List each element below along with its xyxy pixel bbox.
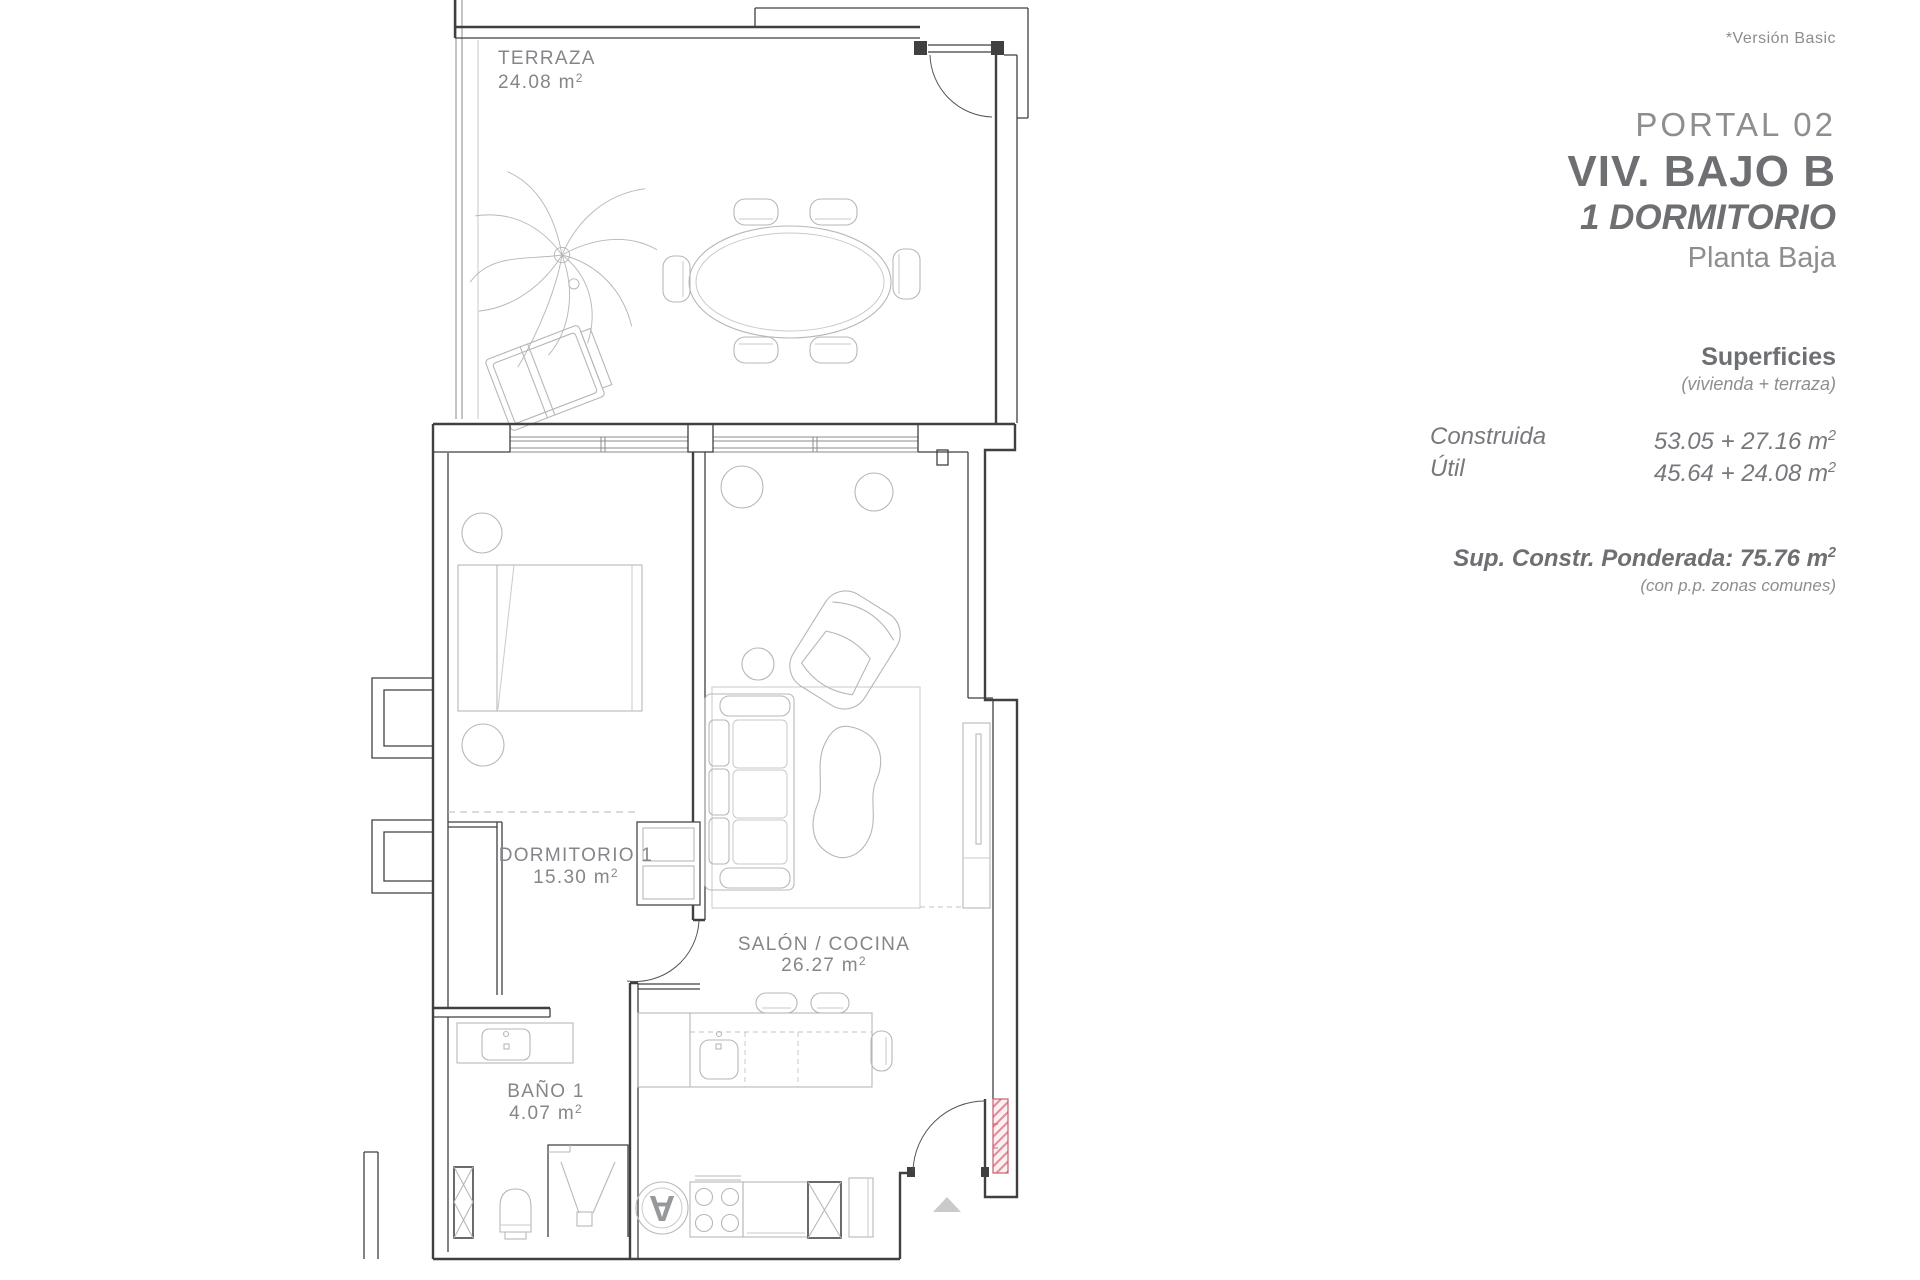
shower (548, 1145, 628, 1237)
label-terraza-area: 24.08 m2 (498, 71, 584, 93)
version-note: *Versión Basic (1430, 30, 1836, 48)
room-labels: TERRAZA 24.08 m2 DORMITORIO 1 15.30 m2 S… (498, 48, 910, 1124)
label-salon-cocina: SALÓN / COCINA (738, 933, 910, 955)
entrance-door-jamb-right (981, 1167, 989, 1177)
toilet (500, 1189, 531, 1239)
tall-unit-fridge (808, 1182, 841, 1238)
hall-closet (448, 822, 502, 995)
surface-value: 45.64 + 24.08 m2 (1654, 455, 1836, 487)
surface-row-util: Útil 45.64 + 24.08 m2 (1430, 455, 1836, 487)
floor-plan-sheet: A (0, 0, 1920, 1280)
surfaces-title: Superficies (1430, 343, 1836, 372)
tv (976, 734, 981, 844)
island-sink (700, 1040, 738, 1079)
armchair (781, 582, 909, 718)
stove (690, 1176, 743, 1237)
kitchen: A (636, 993, 892, 1238)
sofa (705, 694, 794, 890)
surface-row-construida: Construida 53.05 + 27.16 m2 (1430, 423, 1836, 455)
washer-letter: A (649, 1188, 675, 1229)
entrance-arrow-marker (933, 1197, 961, 1212)
kitchen-island (638, 1013, 872, 1087)
surface-label: Construida (1430, 423, 1546, 455)
entrance-door-jamb-left (907, 1167, 915, 1177)
surface-label: Útil (1430, 455, 1465, 487)
nightstand-1 (462, 513, 502, 553)
facade-fin (364, 1152, 378, 1259)
side-table (742, 648, 774, 680)
floor-name: Planta Baja (1430, 242, 1836, 275)
unit-title: VIV. BAJO B (1430, 150, 1836, 194)
terrace-furniture (470, 172, 920, 432)
label-dormitorio: DORMITORIO 1 (499, 845, 654, 866)
weighted-surface: Sup. Constr. Ponderada: 75.76 m2 (1430, 545, 1836, 573)
facade-windows (510, 424, 948, 465)
salon-furniture (705, 466, 990, 908)
entrance-electrical-panel (993, 1099, 1008, 1173)
kitchen-counter (743, 1182, 808, 1237)
washing-machine: A (636, 1182, 688, 1234)
bathroom (454, 1023, 628, 1239)
tv-sideboard (963, 723, 990, 908)
facade-pilaster-1 (372, 678, 433, 758)
info-panel: *Versión Basic PORTAL 02 VIV. BAJO B 1 D… (1430, 30, 1836, 596)
surface-value: 53.05 + 27.16 m2 (1654, 423, 1836, 455)
vanity (457, 1023, 573, 1063)
label-bano: BAÑO 1 (507, 1080, 585, 1102)
terrace-door-jamb-right (991, 41, 1004, 55)
label-terraza: TERRAZA (498, 48, 596, 69)
sun-lounger (485, 321, 615, 431)
nightstand-2 (462, 724, 504, 766)
unit-type: 1 DORMITORIO (1430, 198, 1836, 238)
label-bano-area: 4.07 m2 (509, 1102, 583, 1124)
surfaces-table: Construida 53.05 + 27.16 m2 Útil 45.64 +… (1430, 423, 1836, 487)
hall-door-arc (627, 921, 699, 982)
plant-pot-2 (855, 473, 893, 511)
hall-door-leaf (638, 984, 700, 989)
double-bed (458, 565, 642, 711)
terrace-door-jamb-left (914, 41, 927, 55)
tall-unit-2 (849, 1178, 873, 1237)
coffee-table (810, 724, 884, 861)
weighted-note: (con p.p. zonas comunes) (1430, 576, 1836, 596)
terrace-door-arc (930, 55, 992, 117)
entrance-door-arc (913, 1101, 985, 1171)
window-pier (688, 424, 713, 452)
terrace-door-leaf (928, 45, 991, 52)
label-salon-area: 26.27 m2 (781, 954, 867, 976)
bedroom-furniture (458, 513, 642, 766)
surfaces-subtitle: (vivienda + terraza) (1430, 374, 1836, 395)
shaft (454, 1167, 473, 1238)
facade-pilaster-2 (372, 820, 433, 893)
dining-table (663, 199, 920, 363)
palm-plant (470, 172, 657, 368)
portal-title: PORTAL 02 (1430, 106, 1836, 144)
label-dormitorio-area: 15.30 m2 (533, 866, 619, 888)
plant-pot-1 (721, 466, 763, 508)
